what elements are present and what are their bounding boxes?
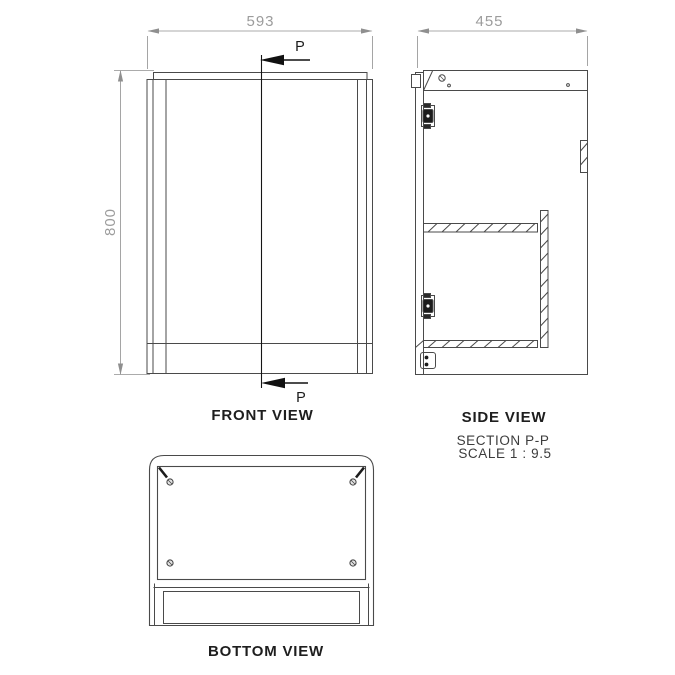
screw-icon [167,560,173,566]
bottom-view-label: BOTTOM VIEW [190,643,342,660]
screw-icon [350,479,356,485]
dim-depth-value: 455 [467,13,512,30]
dim-height-value: 800 [102,200,118,244]
side-rail-miter [424,71,433,91]
bottom-view [150,456,374,626]
side-door-miter [416,341,424,348]
section-arrow-top [260,55,310,65]
side-rail-screw-icon [439,75,570,87]
side-door-panel [416,73,424,375]
side-view [412,71,588,375]
shelf-section [424,224,538,233]
side-body-outline [424,71,588,375]
hinge-top-icon [422,104,435,129]
drawing-geometry [0,0,675,675]
bottom-front-recess [154,584,370,626]
corner-bracket-left-icon [159,468,167,478]
dim-width-value: 593 [238,13,283,30]
front-body-outline [147,80,373,374]
section-marker-bottom: P [291,390,311,406]
dim-height-800 [114,70,154,375]
bottom-screws [167,479,356,566]
side-view-label: SIDE VIEW [430,409,578,426]
screw-icon [350,560,356,566]
side-door-pull-notch [412,75,421,88]
front-panel-lines [147,80,373,374]
screw-icon [167,479,173,485]
technical-drawing-sheet: 593 455 800 P P FRONT VIEW SIDE VIEW SEC… [0,0,675,675]
section-arrow-bottom [261,378,308,388]
dim-depth-455 [418,28,588,68]
bottom-outer-outline [150,456,374,626]
wall-rail-section [581,141,588,173]
front-view-label: FRONT VIEW [190,407,335,424]
section-marker-top: P [290,39,310,55]
bottom-panel-section [424,341,538,348]
section-cut-line [260,55,310,388]
hinge-bottom-icon [422,294,435,319]
back-panel-section [541,211,549,348]
scale-label: SCALE 1 : 9.5 [429,446,581,461]
corner-bracket-right-icon [356,468,364,478]
front-countertop [154,73,368,80]
dim-width-593 [148,28,373,69]
front-view [147,73,373,374]
bottom-base-panel [158,467,366,580]
plinth-bracket-icon [421,353,436,369]
